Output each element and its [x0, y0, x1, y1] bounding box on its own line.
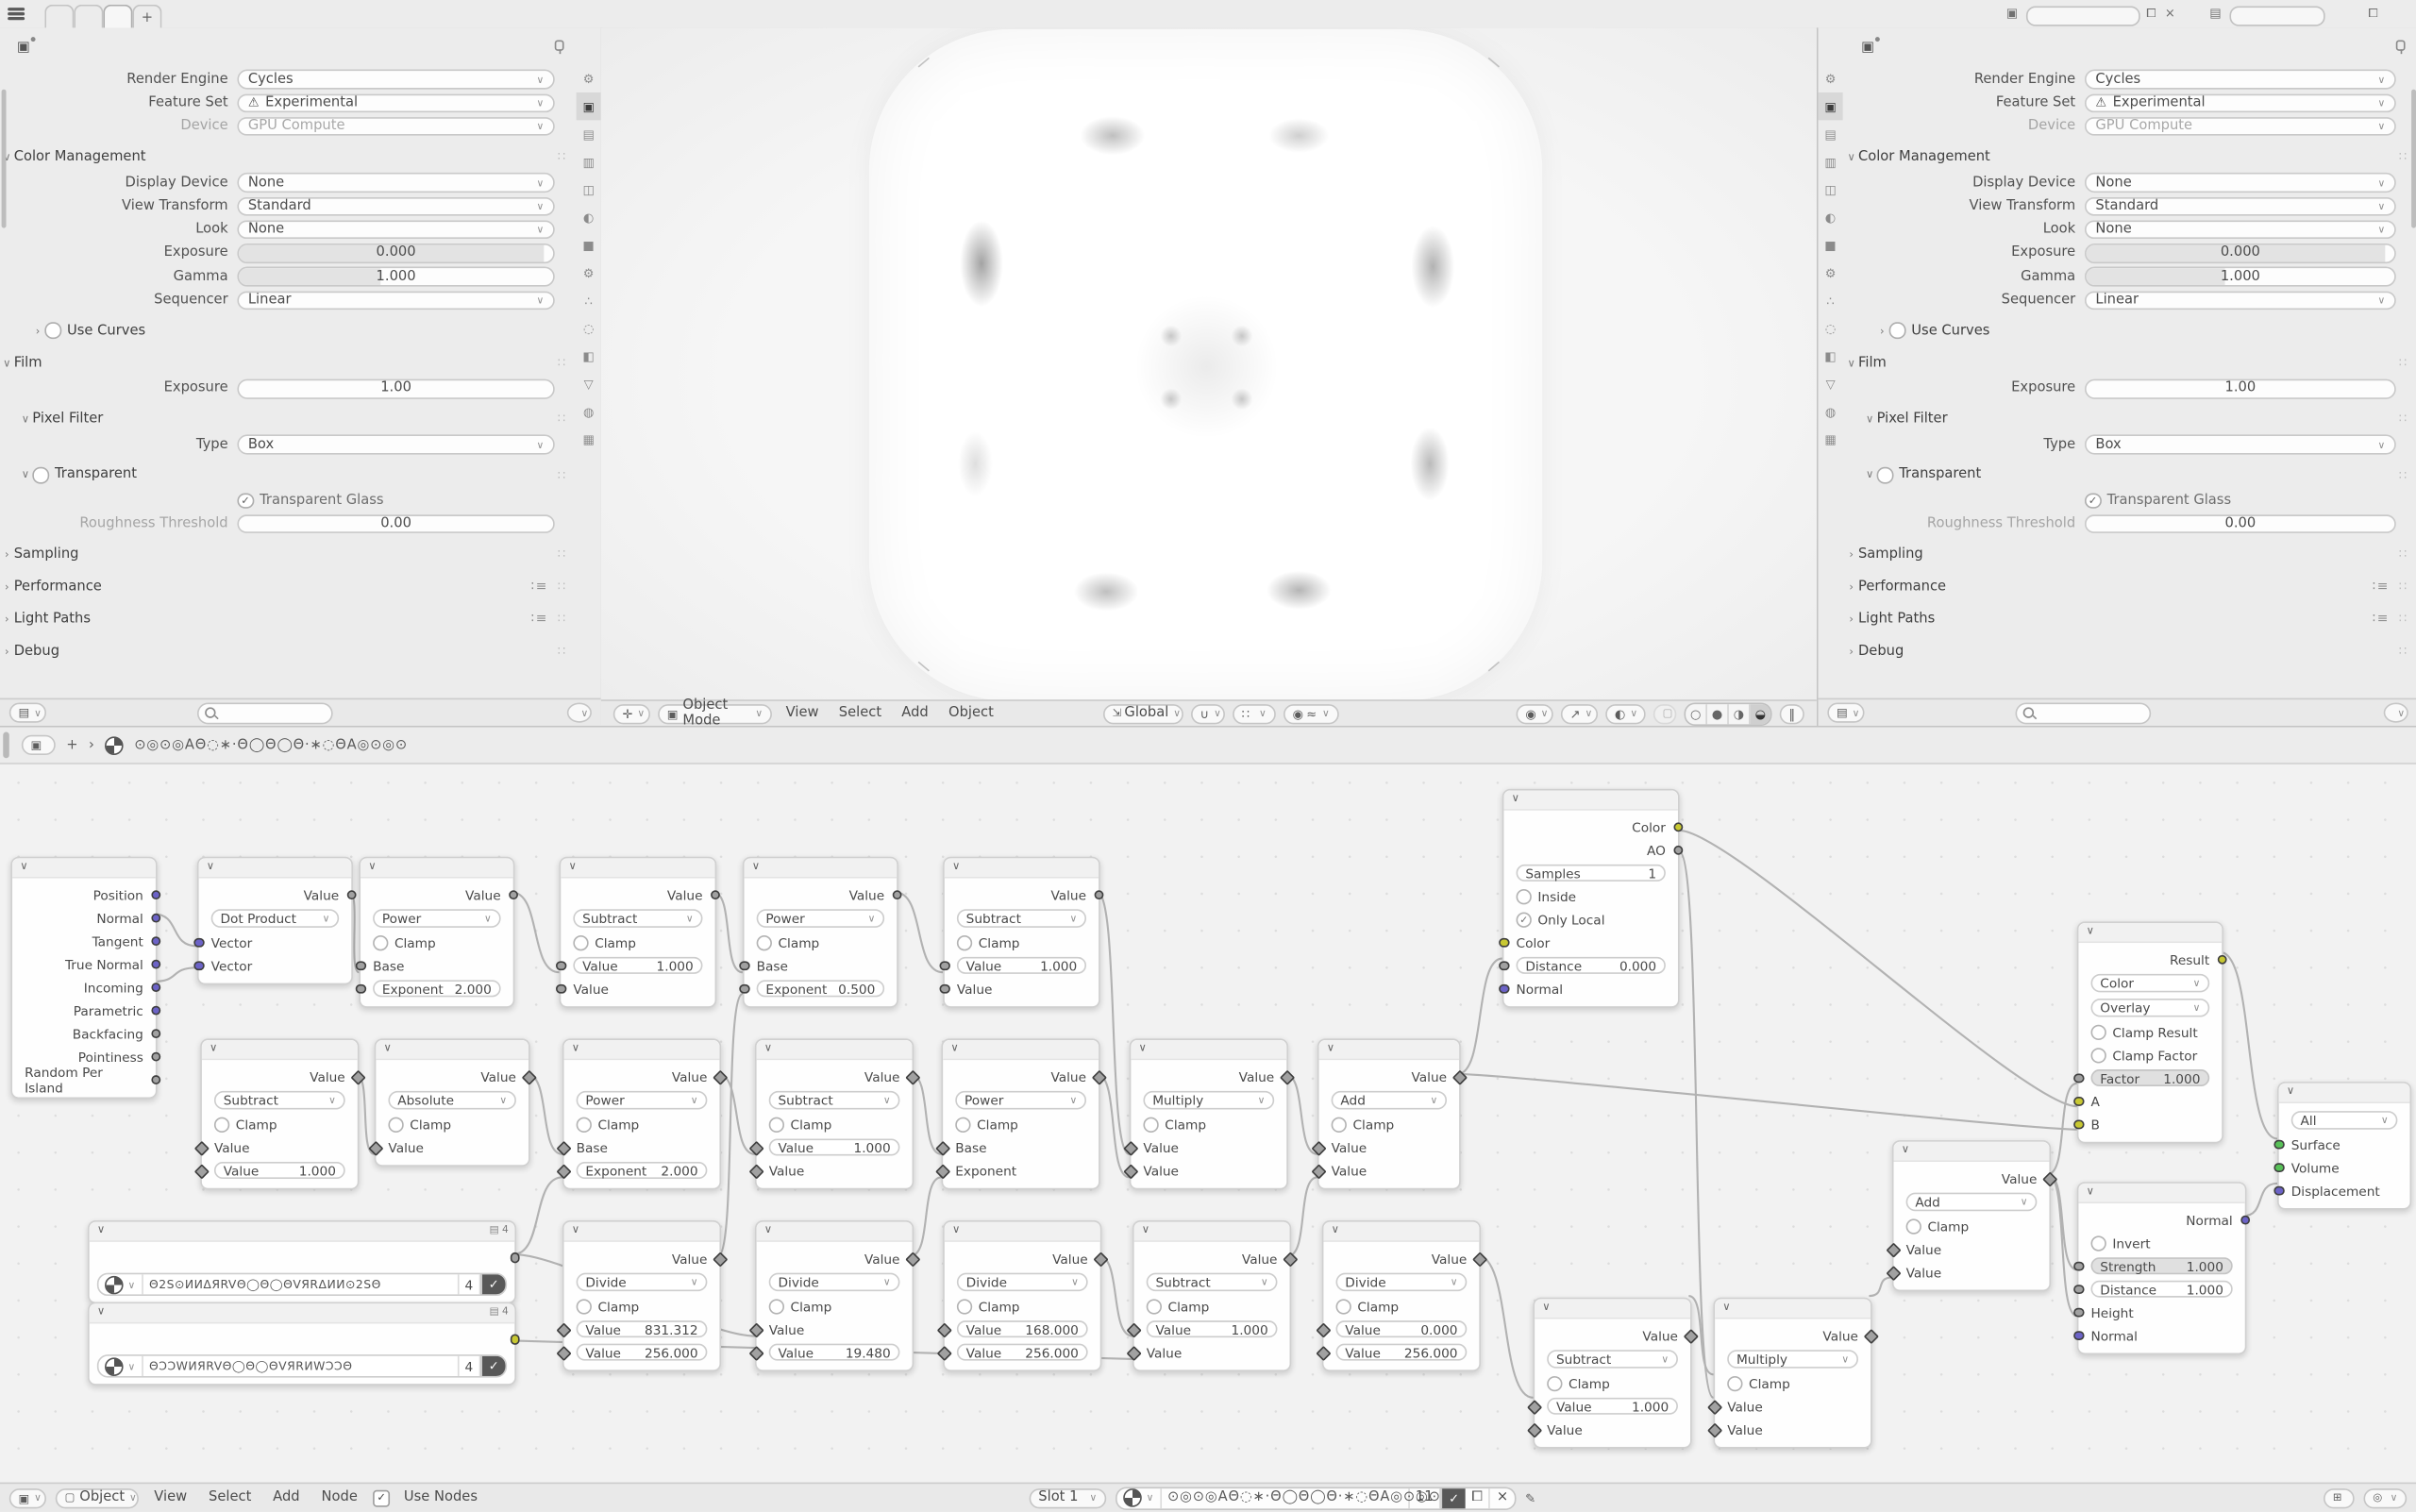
socket-out[interactable]	[508, 889, 518, 899]
properties-tab-object[interactable]: ■	[1819, 231, 1843, 259]
collapse-chevron-icon[interactable]: ∨	[568, 860, 576, 872]
socket-out[interactable]	[151, 889, 161, 899]
properties-tab-texture[interactable]: ▦	[1819, 426, 1843, 453]
node-ambient-occlusion[interactable]: ∨ColorAOSamples1Inside✓Only LocalColorDi…	[1502, 789, 1680, 1008]
properties-tab-physics[interactable]: ◌	[577, 314, 601, 342]
operation-dropdown[interactable]: Dot Product∨	[211, 910, 340, 928]
node-header[interactable]: ∨	[1134, 1222, 1290, 1242]
socket-in[interactable]	[2273, 1185, 2284, 1196]
node-header[interactable]: ∨	[564, 1222, 720, 1242]
xray-toggle[interactable]: ▢	[1653, 703, 1676, 723]
workspace-tab-3-active[interactable]	[103, 5, 132, 29]
socket-out[interactable]	[346, 889, 357, 899]
prop-field-device[interactable]: GPU Compute∨	[237, 117, 554, 136]
socket-out[interactable]	[151, 935, 161, 946]
value-field-value[interactable]: Value1.000	[214, 1162, 345, 1180]
operation-dropdown[interactable]: Subtract∨	[573, 910, 702, 928]
value-field-value[interactable]: Value1.000	[573, 956, 702, 974]
value-field-value[interactable]: Value19.480	[769, 1343, 900, 1361]
properties-tab-object[interactable]: ■	[577, 231, 601, 259]
prop-field-sequencer[interactable]: Linear∨	[2085, 291, 2396, 310]
node-header[interactable]: ∨	[1319, 1040, 1460, 1060]
section-performance[interactable]: ›Performance∶≡∷	[0, 573, 577, 600]
checkbox-transparent[interactable]	[32, 467, 48, 483]
socket-in[interactable]	[193, 961, 204, 971]
properties-tab-particles[interactable]: ∴	[577, 287, 601, 314]
use-curves-checkbox[interactable]	[44, 323, 60, 339]
checkbox-transparent[interactable]	[1877, 467, 1893, 483]
node-math-subtract-3[interactable]: ∨ValueSubtract∨ClampValueValue1.000	[200, 1038, 359, 1189]
collapse-chevron-icon[interactable]: ∨	[1542, 1301, 1550, 1313]
section-light-paths[interactable]: ›Light Paths∶≡∷	[0, 605, 577, 632]
operation-dropdown[interactable]: All∨	[2291, 1112, 2398, 1130]
properties-tab-world[interactable]: ◐	[1819, 204, 1843, 231]
collapse-chevron-icon[interactable]: ∨	[97, 1305, 105, 1318]
properties-tab-material[interactable]: ◍	[1819, 397, 1843, 425]
properties-tab-view-layer[interactable]: ▥	[1819, 148, 1843, 176]
section-film[interactable]: ∨Film∷	[0, 349, 577, 377]
node-math-add-1[interactable]: ∨ValueAdd∨ClampValueValue	[1317, 1038, 1461, 1189]
checkbox-clamp[interactable]	[214, 1117, 229, 1132]
socket-out[interactable]	[1673, 822, 1684, 832]
properties-tab-render[interactable]: ▣	[1819, 92, 1843, 120]
node-math-multiply-1[interactable]: ∨ValueMultiply∨ClampValueValue	[1130, 1038, 1288, 1189]
value-field-value[interactable]: Value831.312	[577, 1320, 708, 1338]
node-header[interactable]: ∨	[564, 1040, 720, 1060]
operation-dropdown[interactable]: Subtract∨	[1547, 1351, 1678, 1369]
section-sampling[interactable]: ›Sampling∷	[0, 541, 577, 568]
browse-image-icon[interactable]: ∨	[98, 1356, 143, 1376]
snap-target-dropdown[interactable]: ∷∨	[1233, 703, 1276, 723]
pin-icon[interactable]	[2393, 40, 2406, 52]
prop-field-feature-set[interactable]: ⚠Experimental∨	[2085, 93, 2396, 112]
node-math-power-3[interactable]: ∨ValuePower∨ClampBaseExponent2.000	[562, 1038, 721, 1189]
editor-type-button[interactable]: ▤∨	[9, 702, 46, 722]
section-use-curves[interactable]: ›Use Curves	[0, 317, 577, 344]
pin-icon[interactable]: ✎	[1525, 1491, 1535, 1505]
value-field-distance[interactable]: Distance0.000	[1517, 956, 1666, 974]
section-transparent[interactable]: ∨Transparent∷	[1844, 462, 2416, 489]
section-film[interactable]: ∨Film∷	[1844, 349, 2416, 377]
value-field-factor[interactable]: Factor1.000	[2091, 1069, 2210, 1087]
node-math-multiply-2[interactable]: ∨ValueMultiply∨ClampValueValue	[1714, 1298, 1872, 1449]
checkbox-clamp[interactable]	[573, 934, 588, 949]
snap-toggle[interactable]: ∪∨	[1191, 703, 1225, 723]
collapse-chevron-icon[interactable]: ∨	[572, 1223, 579, 1235]
node-header[interactable]: ∨	[1535, 1299, 1690, 1319]
properties-tab-particles[interactable]: ∴	[1819, 287, 1843, 314]
new-scene-icon[interactable]: ⧠	[2146, 7, 2156, 22]
app-menu-icon[interactable]	[8, 7, 25, 21]
operation-dropdown[interactable]: Subtract∨	[769, 1091, 900, 1109]
menu-add[interactable]: Add	[896, 706, 935, 721]
prop-field-type[interactable]: Box∨	[2085, 435, 2396, 454]
node-header[interactable]: ∨	[1131, 1040, 1286, 1060]
properties-tab-output[interactable]: ▤	[1819, 120, 1843, 147]
node-header[interactable]: ∨	[2078, 923, 2222, 943]
pin-icon[interactable]	[551, 40, 563, 52]
node-math-divide-1[interactable]: ∨ValueDivide∨ClampValue831.312Value256.0…	[562, 1220, 721, 1371]
operation-dropdown[interactable]: Divide∨	[577, 1273, 708, 1291]
value-field-value[interactable]: Value1.000	[957, 956, 1086, 974]
gizmos-dropdown[interactable]: ↗∨	[1561, 703, 1598, 723]
node-header[interactable]: ∨	[945, 858, 1099, 878]
properties-tab-physics[interactable]: ◌	[1819, 314, 1843, 342]
new-view-layer-icon[interactable]: ⧠	[2368, 7, 2377, 22]
editor-type-button[interactable]: ▤∨	[1827, 702, 1864, 722]
socket-out[interactable]	[710, 889, 720, 899]
operation-dropdown[interactable]: Add∨	[1332, 1091, 1447, 1109]
checkbox-clamp[interactable]	[769, 1117, 784, 1132]
unlink-scene-icon[interactable]: ×	[2165, 7, 2175, 22]
checkbox-transparent-glass[interactable]: ✓	[2085, 493, 2101, 509]
node-mix-color[interactable]: ∨ResultColor∨Overlay∨Clamp ResultClamp F…	[2077, 921, 2223, 1143]
shader-type-dropdown[interactable]: ▢Object∨	[56, 1487, 139, 1507]
socket-in[interactable]	[556, 983, 566, 994]
node-header[interactable]: ∨	[1323, 1222, 1479, 1242]
shading-wireframe-button[interactable]: ○	[1686, 703, 1707, 723]
socket-in[interactable]	[2073, 1307, 2084, 1318]
add-workspace-tab[interactable]: +	[132, 5, 161, 29]
section-debug[interactable]: ›Debug∷	[0, 638, 577, 665]
properties-options-button[interactable]: ∨	[567, 702, 592, 722]
section-pixel-filter[interactable]: ∨Pixel Filter∷	[0, 405, 577, 432]
socket-out[interactable]	[151, 959, 161, 969]
checkbox-clamp[interactable]	[1336, 1299, 1351, 1314]
properties-tab-texture[interactable]: ▦	[577, 426, 601, 453]
properties-options-button[interactable]: ∨	[2384, 702, 2408, 722]
prop-field-render-engine[interactable]: Cycles∨	[237, 70, 554, 89]
section-color-management[interactable]: ∨Color Management∷	[0, 143, 577, 171]
socket-in[interactable]	[2073, 1261, 2084, 1271]
browse-material-icon[interactable]: ∨	[1117, 1487, 1162, 1507]
collapse-chevron-icon[interactable]: ∨	[764, 1042, 772, 1054]
node-header[interactable]: ∨	[757, 1040, 913, 1060]
section-light-paths[interactable]: ›Light Paths∶≡∷	[1844, 605, 2416, 632]
collapse-chevron-icon[interactable]: ∨	[1722, 1301, 1730, 1313]
scene-name-field[interactable]	[2026, 6, 2140, 25]
socket-out-color[interactable]	[510, 1252, 520, 1263]
material-name-field[interactable]: ⊙◎⊙◎AΘ◌∗·Θ◯Θ◯Θ·∗◌ΘA◎⊙◎⊙	[1162, 1487, 1410, 1507]
collapse-chevron-icon[interactable]: ∨	[20, 860, 27, 872]
checkbox-clamp[interactable]	[577, 1299, 592, 1314]
menu-view[interactable]: View	[148, 1490, 193, 1505]
socket-in[interactable]	[356, 983, 366, 994]
collapse-chevron-icon[interactable]: ∨	[97, 1223, 105, 1235]
node-header[interactable]: ∨▤ 4	[90, 1222, 515, 1242]
scrollbar[interactable]	[2, 90, 7, 228]
node-header[interactable]: ∨▤ 4	[90, 1303, 515, 1323]
checkbox-invert[interactable]	[2091, 1235, 2106, 1251]
prop-field-exposure[interactable]: 1.00	[2085, 379, 2396, 398]
prop-field-render-engine[interactable]: Cycles∨	[2085, 70, 2396, 89]
operation-dropdown[interactable]: Power∨	[757, 910, 885, 928]
unlink-material-icon[interactable]: ×	[1490, 1487, 1514, 1507]
checkbox-clamp[interactable]	[1906, 1218, 1921, 1234]
visibility-dropdown[interactable]: ◉∨	[1517, 703, 1553, 723]
collapse-chevron-icon[interactable]: ∨	[1332, 1223, 1339, 1235]
properties-tab-tool[interactable]: ⚙	[1819, 65, 1843, 92]
menu-select[interactable]: Select	[832, 706, 887, 721]
operation-dropdown[interactable]: Multiply∨	[1727, 1351, 1858, 1369]
prop-field-roughness-threshold[interactable]: 0.00	[2085, 514, 2396, 533]
socket-in[interactable]	[2273, 1139, 2284, 1150]
socket-out[interactable]	[1673, 845, 1684, 855]
image-user-count[interactable]: 4	[459, 1274, 480, 1294]
operation-dropdown[interactable]: Power∨	[373, 910, 501, 928]
socket-in[interactable]	[2073, 1284, 2084, 1294]
prop-field-view-transform[interactable]: Standard∨	[2085, 196, 2396, 215]
checkbox-clamp[interactable]	[1727, 1375, 1742, 1390]
properties-tab-world[interactable]: ◐	[577, 204, 601, 231]
socket-out[interactable]	[151, 982, 161, 992]
node-math-subtract-4[interactable]: ∨ValueSubtract∨ClampValue1.000Value	[755, 1038, 914, 1189]
fake-user-shield-icon[interactable]: ✓	[1441, 1487, 1466, 1507]
properties-tab-tool[interactable]: ⚙	[577, 65, 601, 92]
properties-search-input[interactable]	[197, 702, 333, 724]
prop-field-look[interactable]: None∨	[237, 220, 554, 239]
socket-in[interactable]	[1499, 937, 1509, 948]
checkbox-clamp[interactable]	[1147, 1299, 1162, 1314]
prop-field-device[interactable]: GPU Compute∨	[2085, 117, 2396, 136]
node-math-divide-4[interactable]: ∨ValueDivide∨ClampValue0.000Value256.000	[1322, 1220, 1481, 1371]
collapse-chevron-icon[interactable]: ∨	[368, 860, 376, 872]
checkbox-clamp-factor[interactable]	[2091, 1047, 2106, 1062]
value-field-value[interactable]: Value168.000	[957, 1320, 1088, 1338]
node-math-absolute[interactable]: ∨ValueAbsolute∨ClampValue	[375, 1038, 530, 1167]
section-performance[interactable]: ›Performance∶≡∷	[1844, 573, 2416, 600]
prop-field-exposure[interactable]: 1.00	[237, 379, 554, 398]
value-field-value[interactable]: Value0.000	[1336, 1320, 1468, 1338]
operation-dropdown[interactable]: Subtract∨	[1147, 1273, 1278, 1291]
checkbox-only-local[interactable]: ✓	[1517, 912, 1532, 927]
operation-dropdown[interactable]: Add∨	[1906, 1193, 2038, 1211]
socket-in[interactable]	[2073, 1096, 2084, 1106]
node-header[interactable]: ∨	[2279, 1084, 2410, 1103]
collapse-chevron-icon[interactable]: ∨	[952, 1223, 960, 1235]
shading-rendered-button[interactable]: ◒	[1751, 703, 1770, 723]
operation-dropdown[interactable]: Overlay∨	[2091, 999, 2210, 1016]
value-field-exponent[interactable]: Exponent0.500	[757, 980, 885, 998]
node-math-divide-2[interactable]: ∨ValueDivide∨ClampValueValue19.480	[755, 1220, 914, 1371]
socket-in[interactable]	[2073, 1119, 2084, 1130]
checkbox-clamp-result[interactable]	[2091, 1024, 2106, 1039]
node-math-subtract-1[interactable]: ∨ValueSubtract∨ClampValue1.000Value	[560, 857, 717, 1008]
socket-in[interactable]	[2073, 1330, 2084, 1340]
node-math-subtract-2[interactable]: ∨ValueSubtract∨ClampValue1.000Value	[943, 857, 1100, 1008]
collapse-chevron-icon[interactable]: ∨	[950, 1042, 958, 1054]
checkbox-clamp[interactable]	[1143, 1117, 1158, 1132]
value-field-value[interactable]: Value1.000	[769, 1138, 900, 1156]
node-header[interactable]: ∨	[199, 858, 352, 878]
properties-tab-output[interactable]: ▤	[577, 120, 601, 147]
node-header[interactable]: ∨	[1503, 791, 1677, 811]
operation-dropdown[interactable]: Subtract∨	[214, 1091, 345, 1109]
checkbox-clamp[interactable]	[955, 1117, 970, 1132]
workspace-tab-1[interactable]	[44, 5, 74, 29]
properties-search-input[interactable]	[2016, 702, 2152, 724]
node-math-power-4[interactable]: ∨ValuePower∨ClampBaseExponent	[942, 1038, 1100, 1189]
operation-dropdown[interactable]: Divide∨	[957, 1273, 1088, 1291]
shading-material-button[interactable]: ◑	[1729, 703, 1751, 723]
overlays-dropdown[interactable]: ◐∨	[1605, 703, 1645, 723]
node-header[interactable]: ∨	[202, 1040, 358, 1060]
transform-orientation-dropdown[interactable]: ⇲Global∨	[1103, 703, 1183, 723]
value-field-exponent[interactable]: Exponent2.000	[577, 1162, 708, 1180]
image-user-count[interactable]: 4	[459, 1356, 480, 1376]
operation-dropdown[interactable]: Subtract∨	[957, 910, 1086, 928]
node-image-texture-2[interactable]: ∨▤ 4∨ΘƆƆWИЯRVΘ◯Θ◯ΘVЯRИWƆƆΘ4✓	[88, 1302, 516, 1386]
new-material-icon[interactable]: ⧠	[1466, 1487, 1490, 1507]
menu-object[interactable]: Object	[942, 706, 999, 721]
properties-tab-scene[interactable]: ◫	[1819, 176, 1843, 203]
value-field-value[interactable]: Value256.000	[957, 1343, 1088, 1361]
properties-tab-constraints[interactable]: ◧	[577, 342, 601, 369]
node-header[interactable]: ∨	[561, 858, 714, 878]
collapse-chevron-icon[interactable]: ∨	[1142, 1223, 1149, 1235]
editor-type-button[interactable]: ▣	[22, 735, 56, 755]
material-slot-dropdown[interactable]: Slot 1∨	[1029, 1487, 1106, 1507]
value-field-value[interactable]: Value1.000	[1547, 1397, 1678, 1415]
collapse-chevron-icon[interactable]: ∨	[1512, 792, 1519, 804]
overlays-dropdown[interactable]: ◎∨	[2363, 1487, 2407, 1507]
socket-in[interactable]	[356, 961, 366, 971]
properties-tab-object-data[interactable]: ▽	[577, 370, 601, 397]
shading-solid-button[interactable]: ●	[1707, 703, 1729, 723]
node-math-dot-product[interactable]: ∨ValueDot Product∨VectorVector	[197, 857, 353, 985]
node-canvas[interactable]: ∨PositionNormalTangentTrue NormalIncomin…	[0, 764, 2416, 1484]
socket-out[interactable]	[151, 1028, 161, 1038]
collapse-chevron-icon[interactable]: ∨	[384, 1042, 392, 1054]
checkbox-inside[interactable]	[1517, 888, 1532, 903]
collapse-chevron-icon[interactable]: ∨	[207, 860, 214, 872]
collapse-chevron-icon[interactable]: ∨	[752, 860, 760, 872]
prop-field-exposure[interactable]: 0.000	[2085, 244, 2396, 262]
node-bump[interactable]: ∨NormalInvertStrength1.000Distance1.000H…	[2077, 1182, 2247, 1354]
prop-field-look[interactable]: None∨	[2085, 220, 2396, 239]
prop-field-view-transform[interactable]: Standard∨	[237, 196, 554, 215]
checkbox-clamp[interactable]	[1547, 1375, 1562, 1390]
section-transparent[interactable]: ∨Transparent∷	[0, 462, 577, 489]
node-math-divide-3[interactable]: ∨ValueDivide∨ClampValue168.000Value256.0…	[943, 1220, 1101, 1371]
prop-field-roughness-threshold[interactable]: 0.00	[237, 514, 554, 533]
node-math-subtract-6[interactable]: ∨ValueSubtract∨ClampValue1.000Value	[1533, 1298, 1691, 1449]
use-curves-checkbox[interactable]	[1889, 323, 1905, 339]
view-layer-field[interactable]	[2229, 6, 2324, 25]
checkbox-transparent-glass[interactable]: ✓	[237, 493, 253, 509]
node-header[interactable]: ∨	[376, 1040, 528, 1060]
socket-out[interactable]	[1094, 889, 1104, 899]
checkbox-clamp[interactable]	[957, 934, 972, 949]
operation-dropdown[interactable]: Power∨	[577, 1091, 708, 1109]
section-debug[interactable]: ›Debug∷	[1844, 638, 2416, 665]
area-corner-grip[interactable]	[3, 732, 9, 759]
socket-out[interactable]	[2217, 954, 2227, 965]
collapse-chevron-icon[interactable]: ∨	[572, 1042, 579, 1054]
socket-out-color[interactable]	[510, 1334, 520, 1344]
node-header[interactable]: ∨	[943, 1040, 1099, 1060]
menu-node[interactable]: Node	[315, 1490, 363, 1505]
fake-user-shield-icon[interactable]: ✓	[480, 1356, 505, 1376]
checkbox-clamp[interactable]	[957, 1299, 972, 1314]
3d-viewport[interactable]: ✛∨ ▣Object Mode∨ View Select Add Object …	[601, 27, 1817, 726]
prop-field-sequencer[interactable]: Linear∨	[237, 291, 554, 310]
node-header[interactable]: ∨	[361, 858, 513, 878]
node-geometry[interactable]: ∨PositionNormalTangentTrue NormalIncomin…	[10, 857, 157, 1099]
value-field-value[interactable]: Value256.000	[577, 1343, 708, 1361]
checkbox-clamp[interactable]	[757, 934, 772, 949]
properties-tab-scene[interactable]: ◫	[577, 176, 601, 203]
collapse-chevron-icon[interactable]: ∨	[2087, 925, 2094, 937]
use-nodes-checkbox[interactable]: ✓	[373, 1489, 390, 1506]
prop-field-display-device[interactable]: None∨	[237, 173, 554, 192]
node-header[interactable]: ∨	[12, 858, 156, 878]
node-material-output[interactable]: ∨All∨SurfaceVolumeDisplacement	[2277, 1082, 2411, 1210]
operation-dropdown[interactable]: Absolute∨	[388, 1091, 516, 1109]
socket-in[interactable]	[1499, 983, 1509, 994]
proportional-editing-dropdown[interactable]: ◉≈∨	[1283, 703, 1339, 723]
collapse-chevron-icon[interactable]: ∨	[1139, 1042, 1147, 1054]
collapse-chevron-icon[interactable]: ∨	[2287, 1084, 2294, 1097]
checkbox-clamp[interactable]	[373, 934, 388, 949]
properties-tab-constraints[interactable]: ◧	[1819, 342, 1843, 369]
value-field-exponent[interactable]: Exponent2.000	[373, 980, 501, 998]
scrollbar[interactable]	[2411, 90, 2416, 228]
fake-user-shield-icon[interactable]: ✓	[480, 1274, 505, 1294]
snapping-toggle[interactable]: ⊞	[2324, 1487, 2355, 1507]
socket-out[interactable]	[2240, 1215, 2250, 1225]
image-name-field[interactable]: ΘƆƆWИЯRVΘ◯Θ◯ΘVЯRИWƆƆΘ	[143, 1356, 459, 1376]
properties-tab-modifiers[interactable]: ⚙	[577, 259, 601, 286]
operation-dropdown[interactable]: Power∨	[955, 1091, 1086, 1109]
editor-type-button[interactable]: ▣∨	[9, 1487, 46, 1507]
operation-dropdown[interactable]: Divide∨	[769, 1273, 900, 1291]
value-field-value[interactable]: Value1.000	[1147, 1320, 1278, 1338]
node-math-power-1[interactable]: ∨ValuePower∨ClampBaseExponent2.000	[359, 857, 514, 1008]
node-math-subtract-5[interactable]: ∨ValueSubtract∨ClampValue1.000Value	[1132, 1220, 1291, 1371]
image-name-field[interactable]: Θ2S⊙ИИΔЯRVΘ◯Θ◯ΘVЯRΔИИ⊙2SΘ	[143, 1274, 459, 1294]
prop-field-exposure[interactable]: 0.000	[237, 244, 554, 262]
menu-add[interactable]: Add	[267, 1490, 307, 1505]
collapse-chevron-icon[interactable]: ∨	[210, 1042, 217, 1054]
socket-in[interactable]	[193, 937, 204, 948]
value-field-distance[interactable]: Distance1.000	[2091, 1280, 2233, 1298]
section-color-management[interactable]: ∨Color Management∷	[1844, 143, 2416, 171]
socket-in[interactable]	[940, 961, 950, 971]
prop-field-display-device[interactable]: None∨	[2085, 173, 2396, 192]
socket-out[interactable]	[151, 913, 161, 923]
prop-field-type[interactable]: Box∨	[237, 435, 554, 454]
socket-out[interactable]	[151, 1005, 161, 1016]
value-field-strength[interactable]: Strength1.000	[2091, 1257, 2233, 1275]
node-header[interactable]: ∨	[1894, 1142, 2050, 1162]
collapse-chevron-icon[interactable]: ∨	[2087, 1185, 2094, 1198]
operation-dropdown[interactable]: Divide∨	[1336, 1273, 1468, 1291]
node-math-add-2[interactable]: ∨ValueAdd∨ClampValueValue	[1892, 1140, 2051, 1291]
node-header[interactable]: ∨	[945, 1222, 1100, 1242]
properties-tab-view-layer[interactable]: ▥	[577, 148, 601, 176]
section-sampling[interactable]: ›Sampling∷	[1844, 541, 2416, 568]
socket-in[interactable]	[739, 983, 749, 994]
operation-dropdown[interactable]: Color∨	[2091, 974, 2210, 992]
socket-in[interactable]	[2073, 1073, 2084, 1084]
checkbox-clamp[interactable]	[1332, 1117, 1347, 1132]
node-header[interactable]: ∨	[1715, 1299, 1871, 1319]
menu-view[interactable]: View	[780, 706, 825, 721]
editor-type-button[interactable]: ✛∨	[613, 703, 650, 723]
collapse-chevron-icon[interactable]: ∨	[1902, 1143, 1909, 1155]
workspace-tab-2[interactable]	[74, 5, 103, 29]
